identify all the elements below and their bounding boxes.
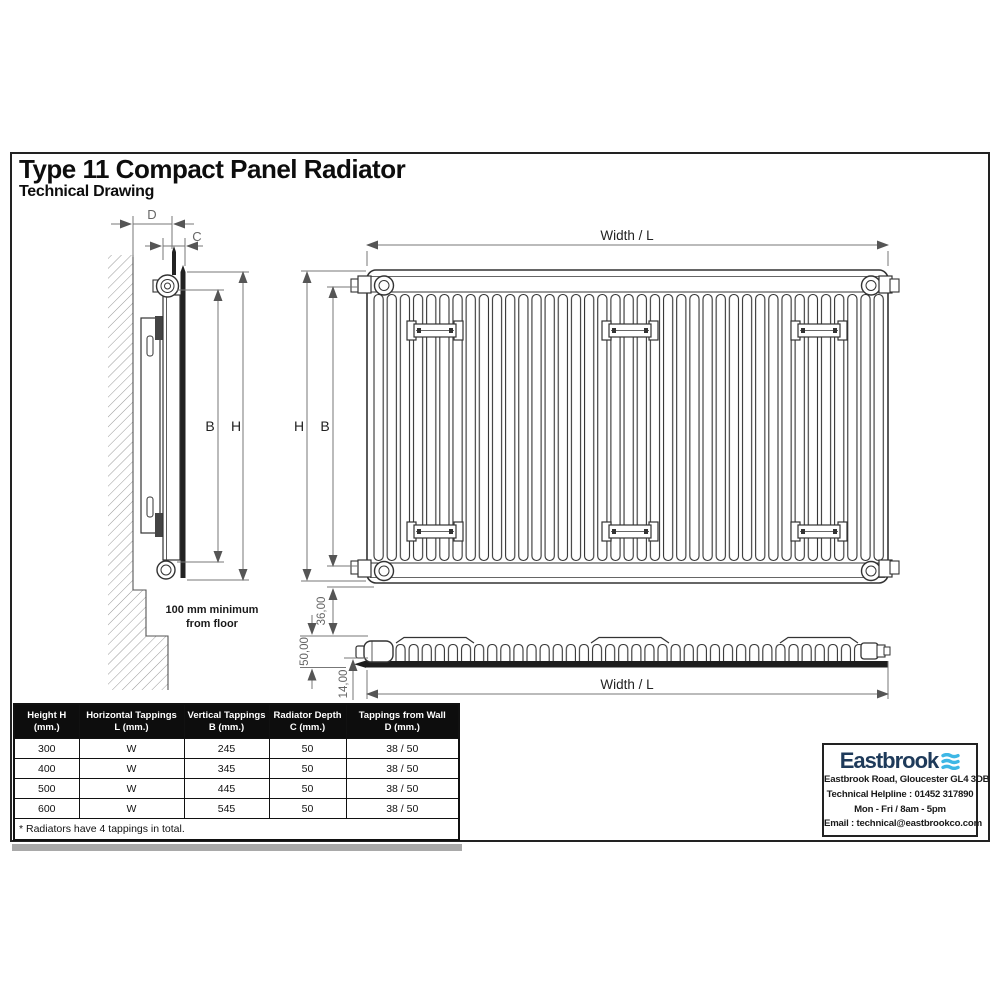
dimension-d [111,216,194,257]
table-cell: 50 [269,779,346,799]
table-cell: 38 / 50 [346,759,459,779]
plan-plug-right [861,643,890,659]
table-header-cell: Radiator DepthC (mm.) [269,704,346,739]
dim-14-label: 14,00 [338,670,350,699]
table-header-cell: Horizontal TappingsL (mm.) [79,704,184,739]
plan-valve-left [356,641,393,662]
table-cell: 50 [269,759,346,779]
dim-d-label: D [147,207,156,222]
bracket [791,321,847,340]
front-view: Width / L H B [294,228,899,583]
width-top-label: Width / L [600,228,654,243]
wall-bracket [141,316,163,537]
contact-helpline: Technical Helpline : 01452 317890 [824,788,976,803]
table-cell: 400 [14,759,79,779]
table-cell: 38 / 50 [346,799,459,819]
table-header-cell: Vertical TappingsB (mm.) [184,704,269,739]
page-canvas: Type 11 Compact Panel Radiator Technical… [0,0,1000,1000]
table-row: 600 W 545 50 38 / 50 [14,799,459,819]
bracket [602,522,658,541]
table-cell: 545 [184,799,269,819]
brand-name: Eastbrook [840,750,939,772]
table-cell: W [79,759,184,779]
table-row: 500 W 445 50 38 / 50 [14,779,459,799]
front-h-label: H [294,418,304,434]
width-bottom-label: Width / L [600,677,654,692]
table-footnote: * Radiators have 4 tappings in total. [14,819,459,841]
plan-view: 36,00 [299,587,890,700]
table-header-row: Height H(mm.) Horizontal TappingsL (mm.)… [14,704,459,739]
table-footnote-row: * Radiators have 4 tappings in total. [14,819,459,841]
dimension-36 [327,587,374,634]
table-cell: W [79,779,184,799]
table-cell: 600 [14,799,79,819]
bracket [407,522,463,541]
contact-box: Eastbrook Eastbrook Road, Gloucester GL4… [822,743,978,837]
table-shadow [12,844,462,851]
dim-36-label: 36,00 [316,597,328,626]
table-cell: 38 / 50 [346,739,459,759]
waves-icon [941,753,960,770]
front-b-label: B [320,418,329,434]
bracket [791,522,847,541]
table-row: 300 W 245 50 38 / 50 [14,739,459,759]
table-cell: 50 [269,739,346,759]
table-cell: 445 [184,779,269,799]
contact-address: Eastbrook Road, Gloucester GL4 3DB [824,773,976,788]
brand-logo: Eastbrook [824,749,976,773]
bracket [602,321,658,340]
dimension-b-front [327,287,358,566]
spec-table: Height H(mm.) Horizontal TappingsL (mm.)… [13,703,460,841]
side-h-label: H [231,418,241,434]
table-cell: 50 [269,799,346,819]
table-cell: 245 [184,739,269,759]
contact-email: Email : technical@eastbrookco.com [824,817,976,832]
plan-panel-bar [366,661,888,668]
floor-note-line2: from floor [186,618,239,630]
table-cell: W [79,739,184,759]
table-cell: 500 [14,779,79,799]
contact-hours: Mon - Fri / 8am - 5pm [824,803,976,818]
dim-c-label: C [192,229,201,244]
table-cell: W [79,799,184,819]
table-header-cell: Height H(mm.) [14,704,79,739]
floor-note-line1: 100 mm minimum [166,604,259,616]
table-cell: 345 [184,759,269,779]
dimension-width-top [367,245,888,266]
spec-table-container: Height H(mm.) Horizontal TappingsL (mm.)… [13,703,460,841]
table-cell: 300 [14,739,79,759]
bracket [407,321,463,340]
plan-fin-loops [394,642,862,661]
table-cell: 38 / 50 [346,779,459,799]
dim-50-label: 50,00 [299,637,311,666]
side-b-label: B [205,418,214,434]
table-row: 400 W 345 50 38 / 50 [14,759,459,779]
side-view: D C B H 100 [108,207,259,690]
table-header-cell: Tappings from WallD (mm.) [346,704,459,739]
